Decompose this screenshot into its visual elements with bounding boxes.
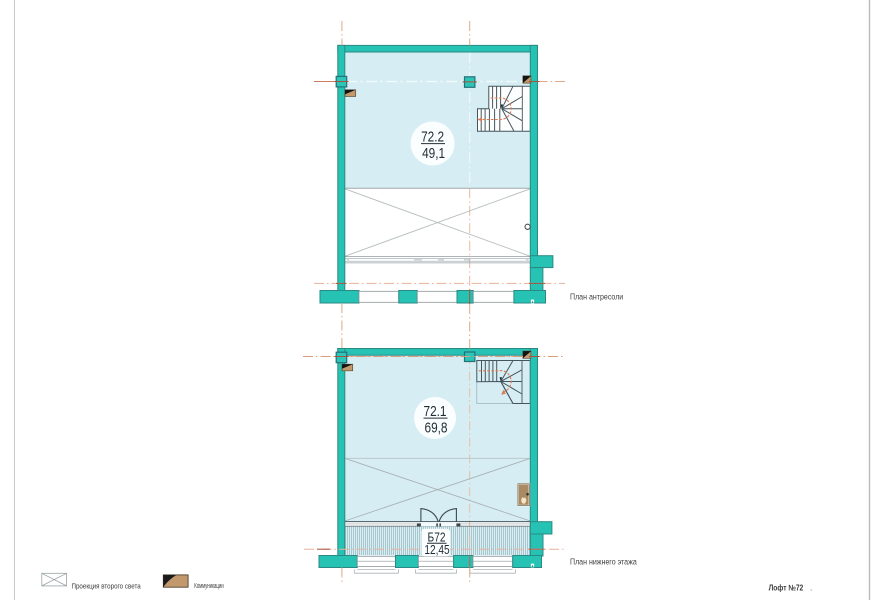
svg-text:72.1: 72.1 xyxy=(423,403,446,420)
svg-text:Проекция второго света: Проекция второго света xyxy=(72,583,141,591)
svg-text:49,1: 49,1 xyxy=(422,145,445,162)
svg-text:Коммуникации: Коммуникации xyxy=(194,583,223,590)
svg-text:План нижнего этажа: План нижнего этажа xyxy=(570,557,637,567)
svg-text:.: . xyxy=(810,584,812,593)
svg-text:Лофт №72: Лофт №72 xyxy=(769,583,804,593)
svg-text:69,8: 69,8 xyxy=(424,419,447,436)
svg-text:План антресоли: План антресоли xyxy=(570,292,623,302)
svg-text:12,45: 12,45 xyxy=(424,543,449,557)
svg-text:72.2: 72.2 xyxy=(421,128,444,145)
